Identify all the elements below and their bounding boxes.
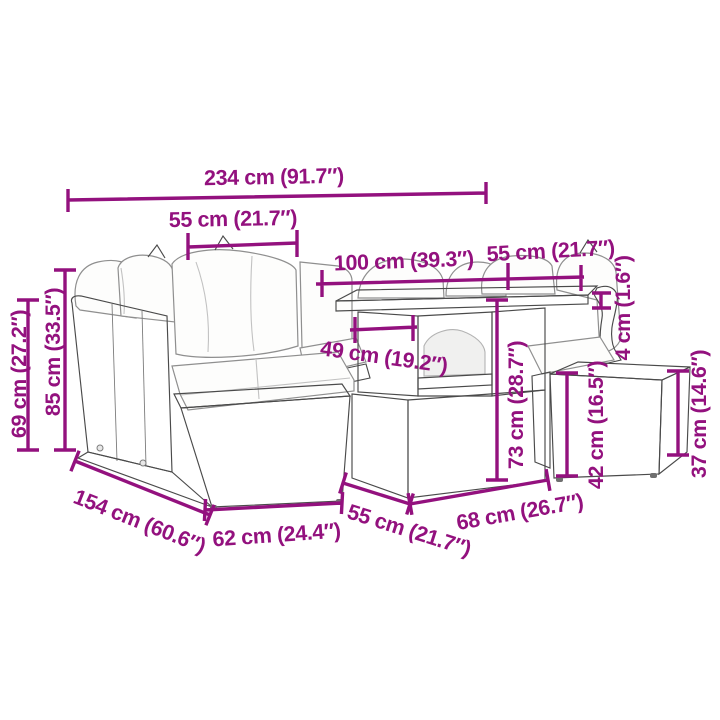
footstool-foot [650,473,657,478]
table-base-left-side [352,394,408,498]
sofa-back-cushion-mid-1 [172,250,298,358]
dim-label-42: 42 cm (16.5″) [584,361,608,489]
dimension-line [667,371,689,455]
dim-sofa-front-width: 62 cm (24.4″) [204,492,342,551]
dim-label-73: 73 cm (28.7″) [504,341,528,469]
footstool-foot [556,477,563,482]
diagram-svg: 234 cm (91.7″) 55 cm (21.7″) 100 cm (39.… [0,0,720,720]
cushion-corner-fold [215,236,233,250]
dim-total-width: 234 cm (91.7″) [68,164,486,212]
sofa-back-panel-seam-2 [142,311,146,466]
chair-base [532,372,550,468]
screw-hole [140,460,146,466]
sofa-left-back-panel [71,296,172,472]
dimension-annotations: 234 cm (91.7″) 55 cm (21.7″) 100 cm (39.… [7,164,711,561]
dim-seat-height: 42 cm (16.5″) [556,361,608,489]
dim-label-100: 100 cm (39.3″) [333,247,474,276]
dim-label-69: 69 cm (27.2″) [7,310,31,438]
dim-label-154: 154 cm (60.6″) [70,485,209,559]
dim-label-4: 4 cm (1.6″) [611,255,635,360]
dim-total-depth: 154 cm (60.6″) [70,451,214,559]
sofa-back-cushion-outer-2 [118,255,175,322]
dim-label-55-top-left: 55 cm (21.7″) [169,206,298,232]
dim-label-62: 62 cm (24.4″) [212,519,342,552]
footstool-right-side [659,367,690,474]
dim-table-depth: 55 cm (21.7″) [340,473,474,562]
dim-label-85: 85 cm (33.5″) [41,288,65,416]
dimension-line [556,373,578,476]
dim-footstool-height: 37 cm (14.6″) [667,350,711,478]
dim-label-68: 68 cm (26.7″) [455,489,586,535]
sofa-back-panel-seam-1 [112,304,117,461]
dim-back-height: 69 cm (27.2″) [7,300,39,450]
dim-label-234: 234 cm (91.7″) [204,164,344,190]
dimension-diagram: 234 cm (91.7″) 55 cm (21.7″) 100 cm (39.… [0,0,720,720]
screw-hole [97,445,103,451]
dim-total-height: 85 cm (33.5″) [41,270,76,450]
dim-label-37: 37 cm (14.6″) [687,350,711,478]
sofa-seat-box-front [181,396,350,507]
dimension-line [350,315,417,343]
